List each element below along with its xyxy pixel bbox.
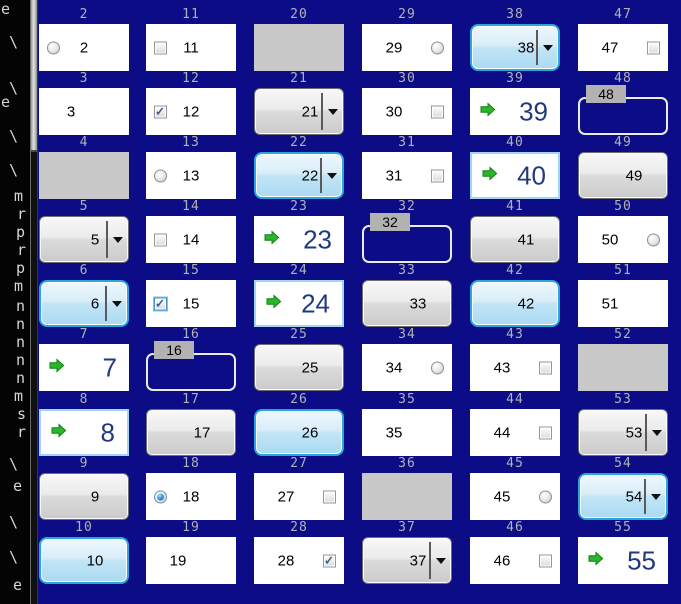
radio-field-45[interactable]: 45	[470, 473, 560, 520]
field-3[interactable]: 3	[39, 88, 129, 135]
cell-number-label: 31	[362, 135, 452, 150]
terminal-character: n	[16, 352, 25, 368]
button-33[interactable]: 33	[362, 280, 452, 327]
field-number: 44	[470, 424, 534, 441]
field-number: 34	[362, 359, 426, 376]
button-10[interactable]: 10	[39, 537, 129, 584]
field-number: 50	[578, 231, 642, 248]
cell-number-label: 30	[362, 71, 452, 86]
cell-number-label: 4	[39, 135, 129, 150]
field-number: 29	[362, 39, 426, 56]
combobox-38[interactable]: 38	[470, 24, 560, 71]
scrollbar-thumb[interactable]	[31, 0, 37, 152]
terminal-character: s	[17, 406, 26, 422]
field-number: 11	[146, 39, 236, 56]
radio-34[interactable]	[431, 361, 444, 374]
terminal-character: r	[17, 242, 26, 258]
terminal-character: \	[9, 549, 18, 565]
dropdown-arrow-icon[interactable]	[543, 45, 553, 51]
dropdown-arrow-icon[interactable]	[651, 494, 661, 500]
checkbox-30[interactable]	[431, 105, 444, 118]
cell-number-label: 39	[470, 71, 560, 86]
checkbox-28[interactable]	[323, 554, 336, 567]
cell-number-label: 37	[362, 520, 452, 535]
cell-number-label: 53	[578, 392, 668, 407]
radio-field-13[interactable]: 13	[146, 152, 236, 199]
button-label: 33	[374, 295, 462, 312]
cell-number-label: 41	[470, 199, 560, 214]
checkbox-field-28[interactable]: 28	[254, 537, 344, 584]
cell-number-label: 45	[470, 456, 560, 471]
field-number: 15	[146, 295, 236, 312]
cell-number-label: 18	[146, 456, 236, 471]
cell-number-label: 38	[470, 7, 560, 22]
cell-number-label: 47	[578, 7, 668, 22]
terminal-character: p	[16, 260, 25, 276]
arrow-field-23[interactable]: 23	[254, 216, 344, 263]
cell-number-label: 22	[254, 135, 344, 150]
cell-number-label: 44	[470, 392, 560, 407]
green-arrow-icon	[482, 165, 498, 186]
terminal-character: \	[9, 456, 18, 472]
terminal-character: e	[1, 1, 10, 17]
terminal-character: \	[9, 514, 18, 530]
field-19[interactable]: 19	[146, 537, 236, 584]
field-number: 31	[362, 167, 426, 184]
field-number: 12	[146, 103, 236, 120]
cell-number-label: 33	[362, 263, 452, 278]
groupbox-tab: 16	[154, 341, 194, 359]
cell-number-label: 6	[39, 263, 129, 278]
dropdown-arrow-icon[interactable]	[112, 301, 122, 307]
arrow-field-55[interactable]: 55	[578, 537, 668, 584]
checkbox-field-30[interactable]: 30	[362, 88, 452, 135]
terminal-character: m	[14, 188, 23, 204]
checkbox-43[interactable]	[539, 361, 552, 374]
radio-field-2[interactable]: 2	[39, 24, 129, 71]
radio-50[interactable]	[647, 233, 660, 246]
cell-number-label: 16	[146, 327, 236, 342]
cell-number-label: 42	[470, 263, 560, 278]
field-number: 51	[578, 295, 642, 312]
checkbox-field-15[interactable]: 15	[146, 280, 236, 327]
checkbox-31[interactable]	[431, 169, 444, 182]
field-number: 28	[254, 552, 318, 569]
combobox-separator	[429, 542, 431, 579]
combobox-value: 5	[51, 231, 139, 248]
terminal-character: m	[14, 278, 23, 294]
combobox-value: 54	[591, 488, 677, 505]
dropdown-arrow-icon[interactable]	[328, 109, 338, 115]
field-number: 27	[254, 488, 318, 505]
checkbox-field-12[interactable]: 12	[146, 88, 236, 135]
dropdown-arrow-icon[interactable]	[327, 173, 337, 179]
button-42[interactable]: 42	[470, 280, 560, 327]
arrow-field-39[interactable]: 39	[470, 88, 560, 135]
terminal-character: \	[9, 162, 18, 178]
cell-number-label: 27	[254, 456, 344, 471]
groupbox-tab: 32	[370, 213, 410, 231]
terminal-character: n	[16, 334, 25, 350]
cell-number-label: 46	[470, 520, 560, 535]
terminal-character: \	[9, 128, 18, 144]
checkbox-47[interactable]	[647, 41, 660, 54]
cell-number-label: 26	[254, 392, 344, 407]
button-label: 41	[482, 231, 570, 248]
cell-number-label: 51	[578, 263, 668, 278]
cell-number-label: 9	[39, 456, 129, 471]
combobox-37[interactable]: 37	[362, 537, 452, 584]
cell-number-label: 14	[146, 199, 236, 214]
field-35[interactable]: 35	[362, 409, 452, 456]
cell-number-label: 10	[39, 520, 129, 535]
field-number: 40	[517, 160, 546, 191]
disabled-box-4	[39, 152, 129, 199]
combobox-separator	[320, 158, 322, 193]
cell-number-label: 40	[470, 135, 560, 150]
cell-number-label: 11	[146, 7, 236, 22]
field-number: 13	[146, 167, 236, 184]
cell-number-label: 36	[362, 456, 452, 471]
cell-number-label: 50	[578, 199, 668, 214]
cell-number-label: 35	[362, 392, 452, 407]
arrow-field-8[interactable]: 8	[39, 409, 129, 456]
combobox-value: 37	[374, 552, 462, 569]
field-number: 30	[362, 103, 426, 120]
button-label: 10	[52, 552, 138, 569]
combobox-value: 53	[590, 424, 678, 441]
cell-number-label: 8	[39, 392, 129, 407]
groupbox-tab: 48	[586, 85, 626, 103]
cell-number-label: 17	[146, 392, 236, 407]
field-number: 18	[146, 488, 236, 505]
cell-number-label: 2	[39, 7, 129, 22]
terminal-character: r	[17, 424, 26, 440]
field-number: 2	[39, 39, 129, 56]
checkbox-field-27[interactable]: 27	[254, 473, 344, 520]
terminal-character: n	[16, 298, 25, 314]
cell-number-label: 43	[470, 327, 560, 342]
combobox-separator	[536, 30, 538, 65]
terminal-character: n	[16, 316, 25, 332]
widget-grid-panel: e\\e\\mrprpmnnnnnmsr\e\\e 22334556677889…	[0, 0, 681, 604]
field-number: 39	[519, 96, 548, 127]
cell-number-label: 52	[578, 327, 668, 342]
radio-field-50[interactable]: 50	[578, 216, 668, 263]
combobox-6[interactable]: 6	[39, 280, 129, 327]
cell-number-label: 54	[578, 456, 668, 471]
radio-29[interactable]	[431, 41, 444, 54]
field-number: 14	[146, 231, 236, 248]
button-41[interactable]: 41	[470, 216, 560, 263]
terminal-character: \	[9, 80, 18, 96]
field-number: 3	[39, 103, 103, 120]
checkbox-field-47[interactable]: 47	[578, 24, 668, 71]
combobox-separator	[106, 221, 108, 258]
radio-field-18[interactable]: 18	[146, 473, 236, 520]
button-25[interactable]: 25	[254, 344, 344, 391]
field-number: 23	[303, 224, 332, 255]
cell-number-label: 13	[146, 135, 236, 150]
field-number: 47	[578, 39, 642, 56]
combobox-53[interactable]: 53	[578, 409, 668, 456]
background-terminal-strip: e\\e\\mrprpmnnnnnmsr\e\\e	[0, 0, 30, 604]
cell-number-label: 7	[39, 327, 129, 342]
cell-number-label: 25	[254, 327, 344, 342]
terminal-character: n	[16, 370, 25, 386]
terminal-character: e	[1, 94, 10, 110]
disabled-box-36	[362, 473, 452, 520]
field-number: 35	[362, 424, 426, 441]
disabled-box-52	[578, 344, 668, 391]
terminal-character: r	[17, 206, 26, 222]
checkbox-27[interactable]	[323, 490, 336, 503]
field-number: 45	[470, 488, 534, 505]
checkbox-field-43[interactable]: 43	[470, 344, 560, 391]
field-number: 46	[470, 552, 534, 569]
combobox-5[interactable]: 5	[39, 216, 129, 263]
cell-number-label: 49	[578, 135, 668, 150]
terminal-character: \	[9, 34, 18, 50]
combobox-value: 21	[266, 103, 354, 120]
checkbox-44[interactable]	[539, 426, 552, 439]
combobox-separator	[644, 479, 646, 514]
button-49[interactable]: 49	[578, 152, 668, 199]
radio-field-34[interactable]: 34	[362, 344, 452, 391]
terminal-character: e	[13, 478, 22, 494]
dropdown-arrow-icon[interactable]	[113, 237, 123, 243]
cell-number-label: 3	[39, 71, 129, 86]
button-9[interactable]: 9	[39, 473, 129, 520]
cell-number-label: 28	[254, 520, 344, 535]
combobox-21[interactable]: 21	[254, 88, 344, 135]
green-arrow-icon	[51, 422, 67, 443]
cell-number-label: 15	[146, 263, 236, 278]
cell-number-label: 12	[146, 71, 236, 86]
checkbox-field-44[interactable]: 44	[470, 409, 560, 456]
combobox-54[interactable]: 54	[578, 473, 668, 520]
cell-number-label: 20	[254, 7, 344, 22]
groupbox-32: 32	[362, 216, 452, 263]
field-number: 43	[470, 359, 534, 376]
combobox-separator	[645, 414, 647, 451]
cell-number-label: 19	[146, 520, 236, 535]
arrow-field-40[interactable]: 40	[470, 152, 560, 199]
groupbox-16: 16	[146, 344, 236, 391]
button-26[interactable]: 26	[254, 409, 344, 456]
combobox-value: 38	[483, 39, 569, 56]
button-label: 17	[158, 424, 246, 441]
terminal-character: m	[14, 388, 23, 404]
green-arrow-icon	[480, 101, 496, 122]
field-number: 24	[301, 288, 330, 319]
cell-number-label: 29	[362, 7, 452, 22]
field-number: 7	[103, 352, 117, 383]
button-label: 26	[267, 424, 353, 441]
combobox-value: 6	[52, 295, 138, 312]
cell-number-label: 21	[254, 71, 344, 86]
arrow-field-7[interactable]: 7	[39, 344, 129, 391]
button-17[interactable]: 17	[146, 409, 236, 456]
terminal-scrollbar[interactable]	[30, 0, 38, 604]
green-arrow-icon	[266, 293, 282, 314]
field-number: 55	[627, 545, 656, 576]
field-51[interactable]: 51	[578, 280, 668, 327]
checkbox-field-11[interactable]: 11	[146, 24, 236, 71]
cell-number-label: 32	[362, 199, 452, 214]
green-arrow-icon	[49, 357, 65, 378]
terminal-character: e	[13, 577, 22, 593]
groupbox-48: 48	[578, 88, 668, 135]
button-label: 9	[51, 488, 139, 505]
radio-45[interactable]	[539, 490, 552, 503]
field-number: 8	[101, 417, 115, 448]
green-arrow-icon	[264, 229, 280, 250]
combobox-separator	[321, 93, 323, 130]
checkbox-field-14[interactable]: 14	[146, 216, 236, 263]
button-label: 42	[483, 295, 569, 312]
terminal-character: p	[16, 224, 25, 240]
green-arrow-icon	[588, 550, 604, 571]
button-label: 49	[590, 167, 678, 184]
field-number: 19	[146, 552, 210, 569]
combobox-value: 22	[267, 167, 353, 184]
cell-number-label: 23	[254, 199, 344, 214]
cell-number-label: 34	[362, 327, 452, 342]
disabled-box-20	[254, 24, 344, 71]
checkbox-field-31[interactable]: 31	[362, 152, 452, 199]
cell-number-label: 24	[254, 263, 344, 278]
checkbox-46[interactable]	[539, 554, 552, 567]
combobox-separator	[105, 286, 107, 321]
radio-field-29[interactable]: 29	[362, 24, 452, 71]
cell-number-label: 48	[578, 71, 668, 86]
cell-number-label: 55	[578, 520, 668, 535]
checkbox-field-46[interactable]: 46	[470, 537, 560, 584]
cell-number-label: 5	[39, 199, 129, 214]
button-label: 25	[266, 359, 354, 376]
dropdown-arrow-icon[interactable]	[436, 558, 446, 564]
combobox-22[interactable]: 22	[254, 152, 344, 199]
dropdown-arrow-icon[interactable]	[652, 430, 662, 436]
arrow-field-24[interactable]: 24	[254, 280, 344, 327]
